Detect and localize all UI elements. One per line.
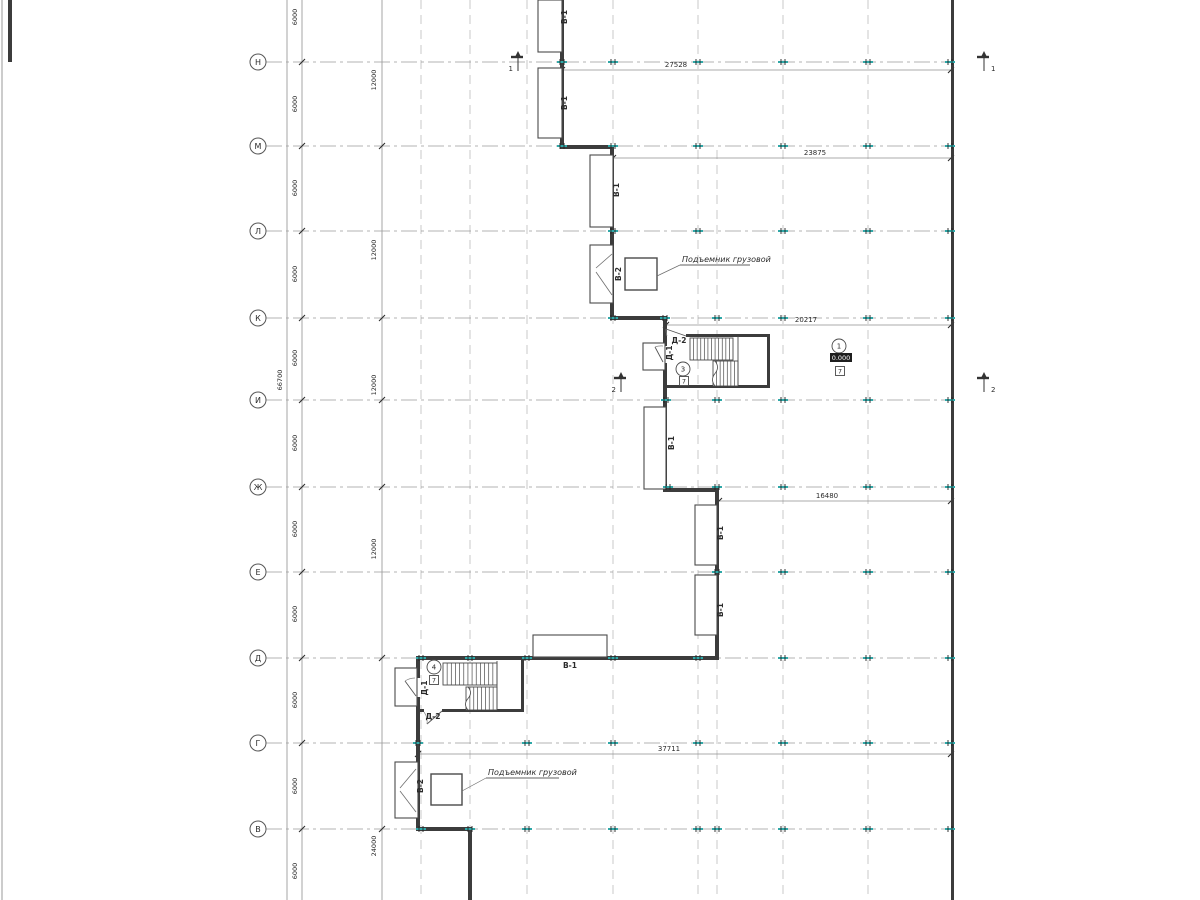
floor-plan-canvas: НМЛКИЖЕДГВ667006000600060006000600060006… bbox=[0, 0, 1200, 900]
type-number: 7 bbox=[432, 677, 436, 685]
section-arrow bbox=[981, 372, 987, 378]
wall-segment bbox=[521, 658, 524, 712]
wall-segment bbox=[951, 0, 954, 900]
lift-shaft bbox=[431, 774, 462, 805]
section-arrow bbox=[515, 51, 521, 57]
opening-outline bbox=[643, 343, 665, 370]
opening-outline bbox=[538, 68, 562, 138]
axis-letter-Н: Н bbox=[255, 58, 261, 67]
opening-label-В-1: В-1 bbox=[612, 183, 621, 197]
opening-outline bbox=[395, 668, 417, 706]
room-number: 4 bbox=[432, 664, 437, 672]
plan-marks: 3147770.000 bbox=[427, 339, 852, 685]
section-number: 2 bbox=[612, 386, 616, 394]
dim-6000: 6000 bbox=[291, 863, 299, 880]
opening-outline bbox=[590, 155, 613, 227]
walls bbox=[8, 0, 954, 900]
axis-letter-Д: Д bbox=[255, 654, 261, 663]
section-number: 1 bbox=[509, 65, 513, 73]
axis-letter-В: В bbox=[255, 825, 261, 834]
wall-segment bbox=[610, 316, 667, 320]
opening-label-Д-2: Д-2 bbox=[425, 712, 440, 721]
grid-lines bbox=[2, 0, 868, 900]
opening-outline bbox=[695, 575, 717, 635]
dimension-value: 27528 bbox=[665, 61, 687, 69]
opening-label-Д-2: Д-2 bbox=[671, 336, 686, 345]
opening-outline bbox=[644, 407, 666, 489]
opening-label-В-2: В-2 bbox=[614, 267, 623, 281]
type-number: 7 bbox=[838, 368, 842, 376]
opening-outline bbox=[695, 505, 717, 565]
opening-label-В-1: В-1 bbox=[716, 603, 725, 617]
dim-total-height: 66700 bbox=[276, 370, 284, 391]
door-leaf bbox=[666, 329, 686, 336]
dim-12000: 12000 bbox=[370, 539, 378, 560]
opening-label-Д-1: Д-1 bbox=[665, 345, 674, 360]
floor-plan-drawing: НМЛКИЖЕДГВ667006000600060006000600060006… bbox=[0, 0, 1200, 900]
axis-letter-М: М bbox=[255, 142, 262, 151]
dim-6000: 6000 bbox=[291, 96, 299, 113]
opening-label-В-1: В-1 bbox=[667, 436, 676, 450]
axis-letter-Ж: Ж bbox=[254, 483, 263, 492]
wall-segment bbox=[468, 827, 472, 900]
type-number: 7 bbox=[682, 378, 686, 386]
left-dimension-labels: 6670060006000600060006000600060006000600… bbox=[276, 9, 378, 880]
dim-12000: 12000 bbox=[370, 240, 378, 261]
opening-label-Д-1: Д-1 bbox=[420, 680, 429, 695]
opening-outline bbox=[533, 635, 607, 657]
axis-letter-К: К bbox=[255, 314, 261, 323]
dim-6000: 6000 bbox=[291, 692, 299, 709]
section-number: 1 bbox=[991, 65, 995, 73]
lift-note-text: Подъемник грузовой bbox=[488, 768, 577, 777]
dim-6000: 6000 bbox=[291, 266, 299, 283]
axis-letter-Г: Г bbox=[256, 739, 261, 748]
elevation-value: 0.000 bbox=[832, 354, 851, 362]
dimension-value: 20217 bbox=[795, 316, 817, 324]
section-marks: 1122 bbox=[509, 51, 996, 394]
dimension-value: 16480 bbox=[816, 492, 838, 500]
wall-segment bbox=[8, 0, 12, 62]
wall-segment bbox=[686, 334, 770, 337]
gate-openings bbox=[395, 0, 717, 818]
dim-6000: 6000 bbox=[291, 435, 299, 452]
opening-label-В-1: В-1 bbox=[563, 661, 577, 670]
dim-6000: 6000 bbox=[291, 350, 299, 367]
wall-segment bbox=[663, 488, 719, 492]
opening-outline bbox=[538, 0, 562, 52]
section-arrow bbox=[981, 51, 987, 57]
dim-6000: 6000 bbox=[291, 606, 299, 623]
lift-note-leader bbox=[657, 265, 680, 276]
lift-note-text: Подъемник грузовой bbox=[682, 255, 771, 264]
section-number: 2 bbox=[991, 386, 995, 394]
opening-label-В-1: В-1 bbox=[716, 526, 725, 540]
room-number: 3 bbox=[681, 366, 685, 374]
room-number: 1 bbox=[837, 343, 841, 351]
lift-shaft bbox=[625, 258, 657, 290]
opening-label-В-2: В-2 bbox=[416, 779, 425, 793]
wall-segment bbox=[767, 334, 770, 388]
axis-letter-Л: Л bbox=[255, 227, 261, 236]
axis-letter-И: И bbox=[255, 396, 261, 405]
dim-6000: 6000 bbox=[291, 521, 299, 538]
dim-6000: 6000 bbox=[291, 9, 299, 26]
section-arrow bbox=[618, 372, 624, 378]
dimension-value: 23875 bbox=[804, 149, 826, 157]
opening-label-В-1: В-1 bbox=[560, 10, 569, 24]
dim-12000: 24000 bbox=[370, 836, 378, 857]
dim-6000: 6000 bbox=[291, 180, 299, 197]
dim-6000: 6000 bbox=[291, 778, 299, 795]
dim-12000: 12000 bbox=[370, 70, 378, 91]
opening-outline bbox=[590, 245, 613, 303]
opening-label-В-1: В-1 bbox=[560, 96, 569, 110]
axis-letter-Е: Е bbox=[255, 568, 260, 577]
dim-12000: 12000 bbox=[370, 375, 378, 396]
wall-segment bbox=[560, 145, 613, 149]
column-markers bbox=[413, 59, 955, 832]
horizontal-dimensions: 2752823875202171648037711 bbox=[415, 61, 954, 757]
dimension-value: 37711 bbox=[658, 745, 680, 753]
lift-note-leader bbox=[462, 778, 486, 791]
